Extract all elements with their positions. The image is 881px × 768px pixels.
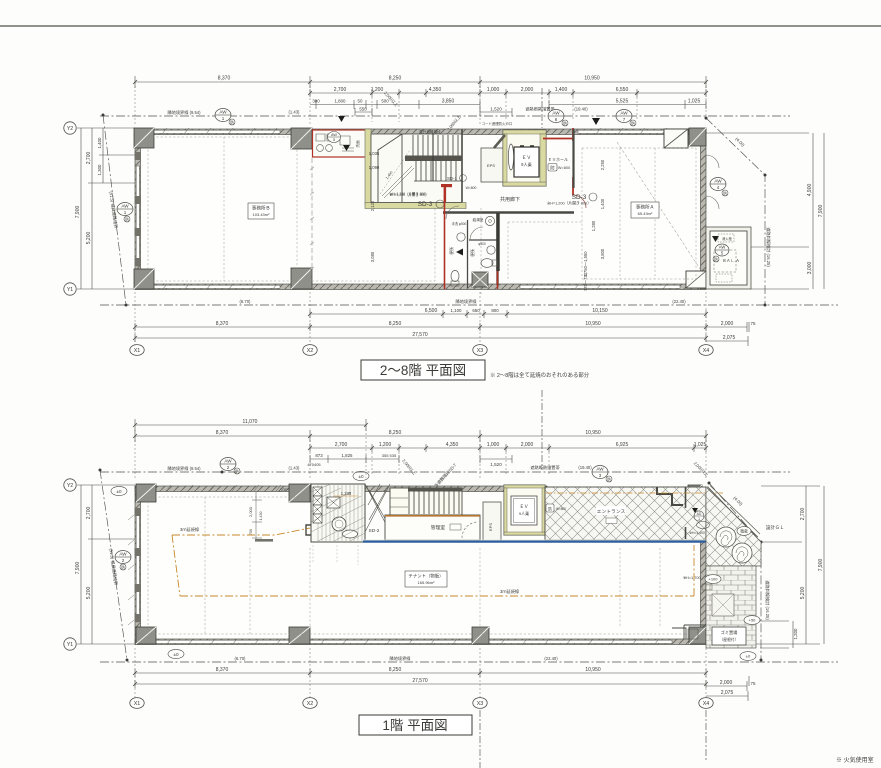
svg-text:2,120: 2,120: [370, 200, 375, 211]
svg-text:5,525: 5,525: [616, 99, 629, 105]
svg-text:103.43m²: 103.43m²: [253, 212, 271, 217]
svg-text:3: 3: [599, 473, 602, 478]
svg-text:手洗 φ500: 手洗 φ500: [452, 221, 467, 226]
svg-text:(6.70): (6.70): [235, 656, 247, 661]
svg-text:355 535: 355 535: [382, 453, 397, 458]
svg-text:W=800: W=800: [558, 166, 570, 170]
svg-text:7: 7: [623, 117, 626, 122]
svg-text:1,400: 1,400: [555, 87, 568, 93]
svg-text:8,370: 8,370: [216, 430, 229, 436]
svg-text:2,700: 2,700: [334, 87, 347, 93]
svg-text:1,090: 1,090: [369, 165, 380, 170]
svg-text:防: 防: [230, 119, 234, 125]
svg-text:ＢＡＬ-Ａ: ＢＡＬ-Ａ: [722, 258, 739, 263]
svg-text:AD: AD: [697, 512, 702, 516]
svg-text:873: 873: [315, 453, 323, 458]
svg-text:3ｍ延焼線: 3ｍ延焼線: [500, 588, 520, 595]
svg-text:2: 2: [122, 558, 125, 563]
svg-text:2,000: 2,000: [521, 442, 534, 448]
svg-text:8,250: 8,250: [389, 667, 402, 673]
svg-text:1,300: 1,300: [97, 164, 102, 176]
svg-text:1,520: 1,520: [490, 462, 502, 467]
svg-text:隣地境界線: 隣地境界線: [456, 298, 478, 305]
svg-text:2,250: 2,250: [600, 159, 605, 170]
svg-text:5: 5: [333, 138, 335, 142]
svg-text:5,200: 5,200: [86, 587, 92, 600]
svg-text:1: 1: [222, 116, 225, 121]
svg-text:コード遮煙防火戸口: コード遮煙防火戸口: [482, 121, 513, 126]
svg-text:AW: AW: [219, 110, 227, 115]
svg-text:1,200: 1,200: [371, 87, 384, 93]
svg-text:ゴミ置場: ゴミ置場: [721, 629, 739, 636]
svg-text:6: 6: [555, 117, 558, 122]
svg-text:9人乗: 9人乗: [521, 161, 532, 168]
svg-text:防: 防: [563, 120, 567, 126]
svg-text:AW: AW: [121, 204, 129, 209]
svg-text:1,000: 1,000: [487, 87, 500, 93]
svg-text:10,950: 10,950: [585, 430, 601, 436]
svg-text:8,250: 8,250: [389, 430, 402, 436]
svg-text:50: 50: [358, 99, 363, 104]
svg-text:道路斜線検討 (16.25): 道路斜線検討 (16.25): [764, 580, 771, 620]
svg-text:ＥＶ: ＥＶ: [520, 504, 529, 509]
svg-text:ＥＶホール: ＥＶホール: [548, 157, 568, 162]
svg-text:470405: 470405: [307, 462, 321, 467]
svg-text:±0: ±0: [358, 474, 364, 479]
svg-text:ＥＶ: ＥＶ: [522, 155, 531, 160]
svg-text:X4: X4: [703, 348, 710, 354]
svg-text:7,900: 7,900: [818, 559, 824, 572]
svg-text:4,350: 4,350: [446, 442, 459, 448]
svg-text:SD-2: SD-2: [369, 528, 380, 534]
svg-text:3,080: 3,080: [370, 251, 375, 262]
svg-text:2: 2: [227, 465, 230, 470]
svg-text:770～720: 770～720: [583, 272, 588, 291]
svg-text:4,900: 4,900: [807, 184, 813, 197]
svg-text:9人乗: 9人乗: [519, 510, 529, 516]
svg-text:AW: AW: [719, 245, 726, 250]
svg-text:2,000: 2,000: [248, 506, 253, 517]
svg-text:6,500: 6,500: [425, 308, 438, 314]
svg-text:X2: X2: [307, 701, 314, 707]
svg-text:10,950: 10,950: [585, 321, 601, 327]
svg-text:AW: AW: [596, 467, 604, 472]
svg-text:3,000: 3,000: [807, 262, 813, 275]
svg-text:2,000: 2,000: [720, 680, 733, 686]
svg-text:便所: 便所: [470, 249, 475, 257]
svg-text:27,570: 27,570: [412, 678, 428, 684]
svg-text:管理室: 管理室: [431, 524, 446, 531]
svg-text:(1.43): (1.43): [289, 110, 301, 115]
svg-text:SD-3: SD-3: [418, 201, 433, 208]
svg-text:1,280: 1,280: [591, 220, 596, 231]
svg-text:4,350: 4,350: [429, 87, 442, 93]
svg-text:+50: +50: [749, 618, 757, 623]
svg-text:1,230: 1,230: [341, 491, 352, 496]
svg-text:1,035: 1,035: [369, 151, 380, 156]
svg-text:6,925: 6,925: [616, 442, 629, 448]
svg-text:7,900: 7,900: [75, 562, 81, 575]
svg-text:Y2: Y2: [67, 483, 73, 489]
svg-text:屋外避難階段: 屋外避難階段: [419, 129, 441, 134]
svg-text:防: 防: [235, 468, 239, 474]
svg-text:AW: AW: [714, 179, 722, 184]
svg-text:(1.43): (1.43): [289, 466, 301, 471]
svg-text:±0: ±0: [116, 489, 122, 494]
svg-text:※H=1,400: ※H=1,400: [689, 531, 705, 535]
svg-text:300: 300: [312, 99, 320, 104]
svg-text:防: 防: [548, 506, 552, 512]
svg-text:10,150: 10,150: [592, 308, 608, 314]
svg-text:2,700: 2,700: [86, 507, 92, 520]
svg-text:1,025: 1,025: [688, 99, 701, 105]
svg-text:10,950: 10,950: [585, 667, 601, 673]
svg-text:X3: X3: [477, 701, 484, 707]
svg-text:1,400: 1,400: [600, 198, 605, 209]
svg-text:650: 650: [472, 308, 480, 313]
svg-text:事務所Ａ: 事務所Ａ: [636, 204, 654, 211]
svg-text:8,370: 8,370: [216, 667, 229, 673]
svg-text:遮熱断熱措置帯: 遮熱断熱措置帯: [530, 464, 559, 471]
svg-text:27,570: 27,570: [412, 332, 428, 338]
svg-text:EPS: EPS: [488, 523, 493, 531]
svg-text:5,200: 5,200: [800, 587, 806, 600]
svg-text:800: 800: [491, 308, 499, 313]
svg-text:(19.40): (19.40): [574, 107, 588, 112]
svg-text:1,025: 1,025: [694, 442, 707, 448]
svg-text:△OP: △OP: [279, 487, 288, 492]
svg-text:W=800: W=800: [466, 186, 477, 190]
svg-text:（屋根付）: （屋根付）: [720, 637, 739, 642]
svg-text:防: 防: [607, 476, 611, 482]
svg-text:2,000: 2,000: [721, 321, 734, 327]
svg-text:±0: ±0: [173, 652, 179, 657]
svg-text:AW: AW: [119, 552, 127, 557]
svg-text:(6.70): (6.70): [240, 299, 252, 304]
svg-text:隣地境界線 (9.54): 隣地境界線 (9.54): [167, 109, 201, 116]
svg-text:X2: X2: [307, 348, 314, 354]
svg-text:※H=1,200（片開き 800）: ※H=1,200（片開き 800）: [547, 201, 591, 206]
svg-text:3ｍ延焼線: 3ｍ延焼線: [180, 526, 200, 533]
svg-text:1,000: 1,000: [487, 442, 500, 448]
svg-text:1,800: 1,800: [335, 99, 347, 104]
svg-text:Y1: Y1: [67, 287, 73, 293]
svg-text:8,370: 8,370: [216, 321, 229, 327]
svg-text:防: 防: [631, 120, 635, 126]
svg-text:※H=1,700: ※H=1,700: [683, 576, 701, 580]
svg-text:2,075: 2,075: [723, 335, 736, 341]
svg-text:1,400: 1,400: [97, 137, 102, 149]
svg-text:±0: ±0: [746, 654, 751, 659]
svg-text:防: 防: [125, 216, 129, 222]
svg-text:防: 防: [723, 190, 727, 196]
svg-text:165.96m²: 165.96m²: [418, 580, 436, 585]
svg-text:SD-1: SD-1: [447, 176, 458, 181]
svg-text:+100: +100: [708, 577, 718, 582]
svg-text:Y1: Y1: [67, 642, 73, 648]
svg-text:1,750～1,550: 1,750～1,550: [583, 251, 588, 277]
svg-text:2,700: 2,700: [335, 442, 348, 448]
svg-text:2～8階 平面図: 2～8階 平面図: [380, 363, 466, 378]
svg-text:共用廊下: 共用廊下: [500, 196, 520, 203]
svg-text:3,800: 3,800: [600, 248, 605, 259]
svg-text:便所: 便所: [449, 247, 454, 255]
svg-text:エントランス: エントランス: [597, 509, 626, 515]
svg-text:W=800: W=800: [556, 507, 566, 511]
svg-text:75: 75: [751, 681, 756, 686]
svg-text:Y2: Y2: [67, 126, 73, 132]
svg-text:4: 4: [717, 185, 720, 190]
svg-text:設計ＧＬ: 設計ＧＬ: [766, 524, 784, 531]
svg-text:3,850: 3,850: [442, 99, 455, 105]
svg-text:550: 550: [359, 107, 367, 112]
svg-text:X4: X4: [703, 701, 710, 707]
svg-text:2,075: 2,075: [721, 690, 734, 696]
svg-text:AW: AW: [331, 133, 337, 137]
svg-text:AW: AW: [224, 459, 232, 464]
svg-text:EPS: EPS: [487, 163, 495, 168]
svg-text:1,520: 1,520: [490, 107, 502, 112]
svg-text:7,900: 7,900: [75, 206, 81, 219]
svg-text:1: 1: [124, 210, 127, 215]
svg-text:1,825: 1,825: [342, 453, 354, 458]
svg-text:AW: AW: [620, 111, 628, 116]
svg-text:7,900: 7,900: [818, 205, 824, 218]
svg-text:X1: X1: [134, 348, 141, 354]
svg-text:植栽: 植栽: [740, 529, 748, 534]
svg-text:2,000: 2,000: [521, 87, 534, 93]
svg-text:(22.40): (22.40): [544, 656, 558, 661]
svg-text:6,550: 6,550: [616, 87, 629, 93]
svg-text:防: 防: [714, 256, 718, 262]
svg-text:防: 防: [550, 165, 555, 172]
svg-text:防: 防: [121, 564, 125, 570]
svg-text:1,200: 1,200: [379, 442, 392, 448]
svg-text:洗面: 洗面: [355, 140, 360, 148]
svg-text:SD-3: SD-3: [572, 194, 587, 201]
svg-text:1,200: 1,200: [793, 628, 798, 640]
svg-text:AW: AW: [552, 111, 560, 116]
svg-text:10,950: 10,950: [584, 76, 600, 82]
svg-text:X3: X3: [477, 348, 484, 354]
svg-text:700: 700: [249, 529, 253, 535]
svg-text:65.43m²: 65.43m²: [638, 211, 653, 216]
svg-text:消火栓: 消火栓: [722, 236, 733, 241]
svg-text:2,700: 2,700: [86, 152, 92, 165]
svg-text:2,700: 2,700: [800, 508, 806, 521]
svg-text:※ 火気使用室: ※ 火気使用室: [836, 756, 874, 764]
svg-text:道路斜線検討 (16.25): 道路斜線検討 (16.25): [765, 227, 772, 267]
svg-text:事務所Ｂ: 事務所Ｂ: [252, 205, 270, 212]
svg-text:8,370: 8,370: [218, 76, 231, 82]
svg-text:1階 平面図: 1階 平面図: [382, 718, 447, 733]
svg-text:隣地境界線: 隣地境界線: [390, 655, 412, 662]
svg-text:8,250: 8,250: [389, 76, 402, 82]
svg-text:11,070: 11,070: [243, 419, 258, 425]
svg-text:※ 2～8階は全て延焼のおそれのある部分: ※ 2～8階は全て延焼のおそれのある部分: [490, 371, 590, 379]
svg-text:1,430: 1,430: [259, 512, 263, 521]
svg-text:給湯室: 給湯室: [473, 217, 484, 222]
svg-text:1,100: 1,100: [451, 308, 463, 313]
svg-text:※H=1,200（片開き 800）: ※H=1,200（片開き 800）: [389, 192, 428, 197]
svg-text:(19.40): (19.40): [578, 465, 592, 470]
svg-text:1: 1: [698, 517, 700, 521]
svg-text:5,200: 5,200: [86, 232, 92, 245]
svg-text:X1: X1: [134, 701, 141, 707]
svg-text:φ500: φ500: [478, 242, 486, 246]
svg-text:隣地境界線 (9.54): 隣地境界線 (9.54): [167, 465, 201, 472]
svg-text:8,250: 8,250: [389, 321, 402, 327]
svg-text:テナント（物販）: テナント（物販）: [408, 573, 443, 580]
svg-text:(22.40): (22.40): [672, 299, 686, 304]
svg-text:75: 75: [751, 321, 756, 326]
